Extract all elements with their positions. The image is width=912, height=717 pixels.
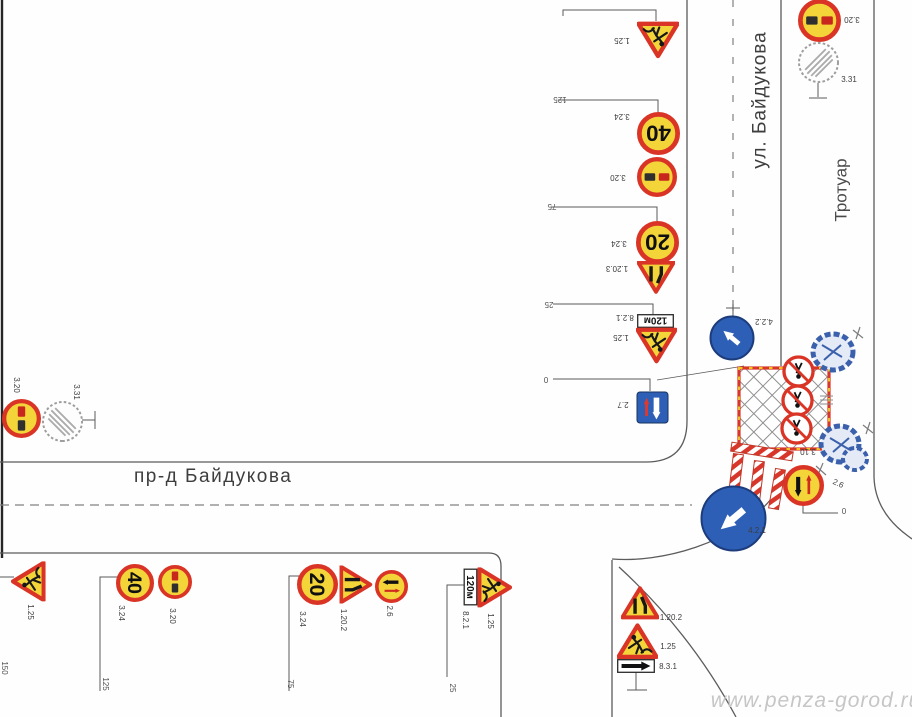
distance-marker: 125 — [101, 677, 109, 690]
sign-code-label: 3.31 — [841, 76, 857, 84]
watermark: www.penza-gorod.ru — [711, 689, 912, 713]
distance-marker: 150 — [0, 661, 8, 674]
distance-marker: 0 — [544, 375, 548, 383]
sign-code-label: 3.24 — [614, 112, 630, 120]
sign-code-label: 1.20.2 — [339, 609, 347, 631]
sign-code-label: 1.25 — [486, 613, 494, 629]
sign-code-label: 3.20 — [610, 173, 626, 181]
sign-code-label: 2.7 — [617, 400, 628, 408]
sign-code-label: 8.3.1 — [659, 663, 677, 671]
sign-code-label: 1.25 — [660, 643, 676, 651]
sign-code-label: 3.24 — [117, 605, 125, 621]
sign-code-label: 1.25 — [613, 333, 629, 341]
distance-marker: 125 — [553, 95, 566, 103]
sign-code-label: 4.2.1 — [748, 527, 766, 535]
sign-code-label: 3.20 — [168, 608, 176, 624]
sidewalk-label: Тротуар — [833, 158, 850, 221]
distance-marker: 0 — [842, 508, 846, 516]
sign-code-label: 8.2.1 — [616, 313, 634, 321]
sign-code-label: 8.2.1 — [461, 611, 469, 629]
sign-code-label: 1.25 — [614, 36, 630, 44]
distance-marker: 75 — [286, 680, 294, 689]
sign-code-label: 1.20.3 — [606, 264, 628, 272]
traffic-scheme-canvas: 4020120м4020120м 1.253.243.203.241.20.38… — [0, 0, 912, 717]
street-label-ul-baydukova: ул. Байдукова — [751, 31, 770, 169]
distance-marker: 25 — [448, 684, 456, 693]
sign-code-label: 3.10 — [800, 447, 816, 455]
sign-code-label: 2.6 — [831, 478, 844, 490]
sign-code-label: 3.24 — [298, 611, 306, 627]
sign-code-label: 2.6 — [385, 605, 393, 616]
sign-code-label: 1.20.2 — [660, 614, 682, 622]
distance-marker: 25 — [545, 300, 554, 308]
labels-layer: 1.253.243.203.241.20.38.2.11.252.73.203.… — [0, 0, 912, 717]
sign-code-label: 4.2.2 — [755, 317, 773, 325]
sign-code-label: 3.31 — [72, 384, 80, 400]
sign-code-label: 3.24 — [611, 239, 627, 247]
sign-code-label: 1.25 — [26, 604, 34, 620]
street-label-prd-baydukova: пр-д Байдукова — [134, 467, 292, 486]
sign-code-label: 3.20 — [12, 377, 20, 393]
distance-marker: 75 — [548, 202, 557, 210]
sign-code-label: 3.20 — [844, 15, 860, 23]
